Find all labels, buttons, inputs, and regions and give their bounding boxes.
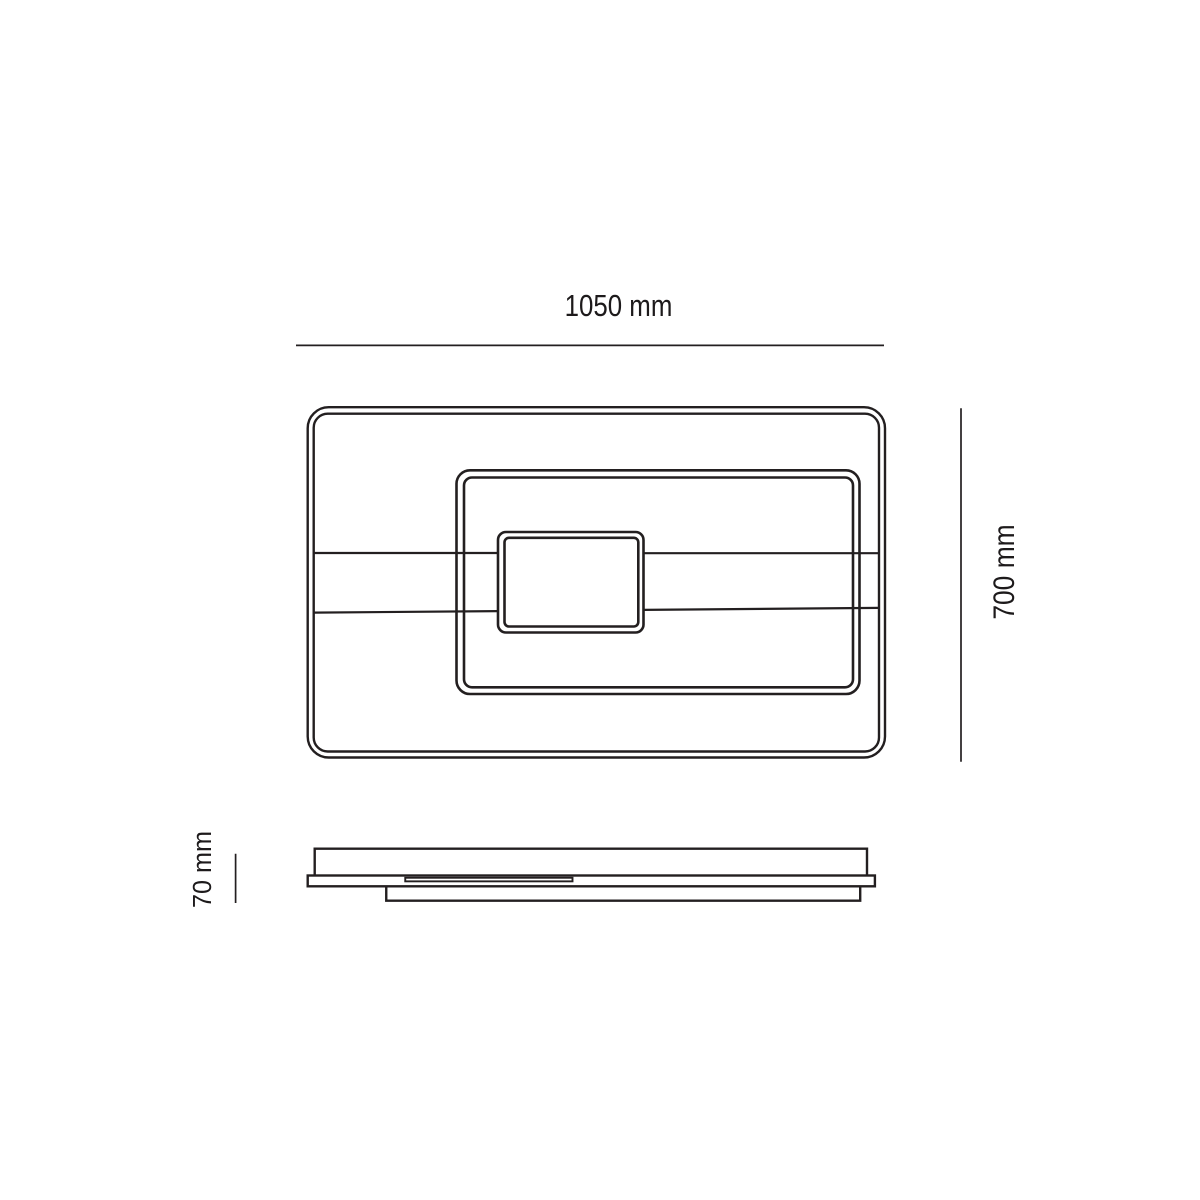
svg-text:1050 mm: 1050 mm	[565, 289, 673, 324]
svg-text:700 mm: 700 mm	[987, 524, 1021, 619]
svg-text:70 mm: 70 mm	[189, 831, 217, 908]
